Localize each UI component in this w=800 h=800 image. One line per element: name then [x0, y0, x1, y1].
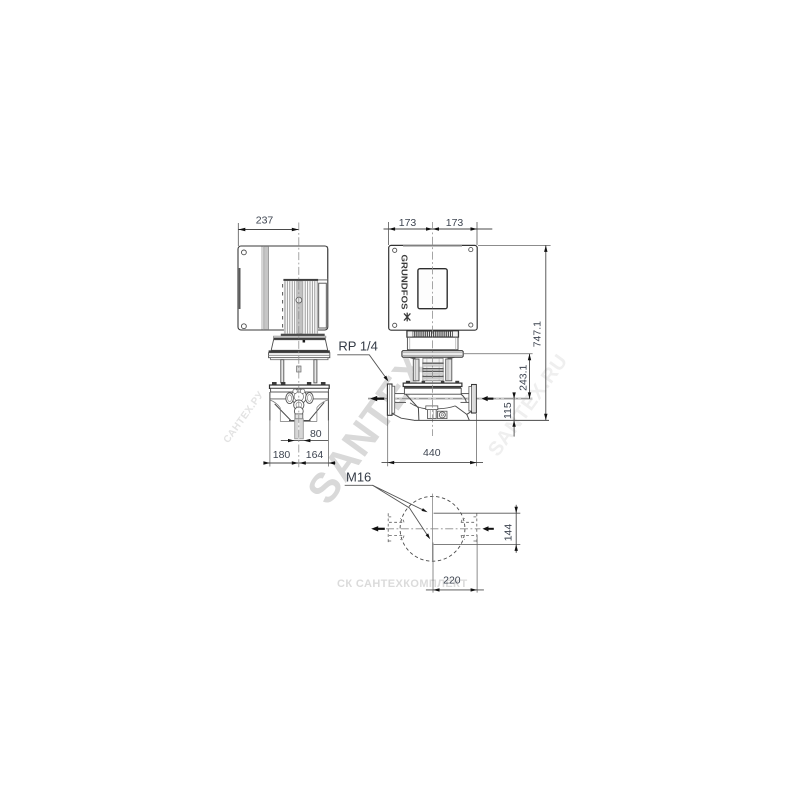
svg-text:115: 115: [502, 402, 514, 419]
svg-text:440: 440: [423, 447, 441, 459]
svg-text:237: 237: [256, 214, 274, 226]
svg-text:173: 173: [399, 217, 417, 229]
svg-text:RP 1/4: RP 1/4: [338, 338, 378, 353]
svg-text:173: 173: [446, 217, 464, 229]
svg-text:GRUNDFOS: GRUNDFOS: [399, 255, 409, 310]
svg-text:220: 220: [443, 575, 461, 587]
svg-text:243.1: 243.1: [517, 364, 529, 390]
svg-text:80: 80: [310, 428, 322, 440]
svg-text:M16: M16: [346, 470, 371, 485]
svg-text:144: 144: [502, 524, 514, 542]
svg-text:747.1: 747.1: [531, 321, 543, 347]
svg-text:180: 180: [273, 449, 291, 461]
svg-text:164: 164: [306, 449, 324, 461]
